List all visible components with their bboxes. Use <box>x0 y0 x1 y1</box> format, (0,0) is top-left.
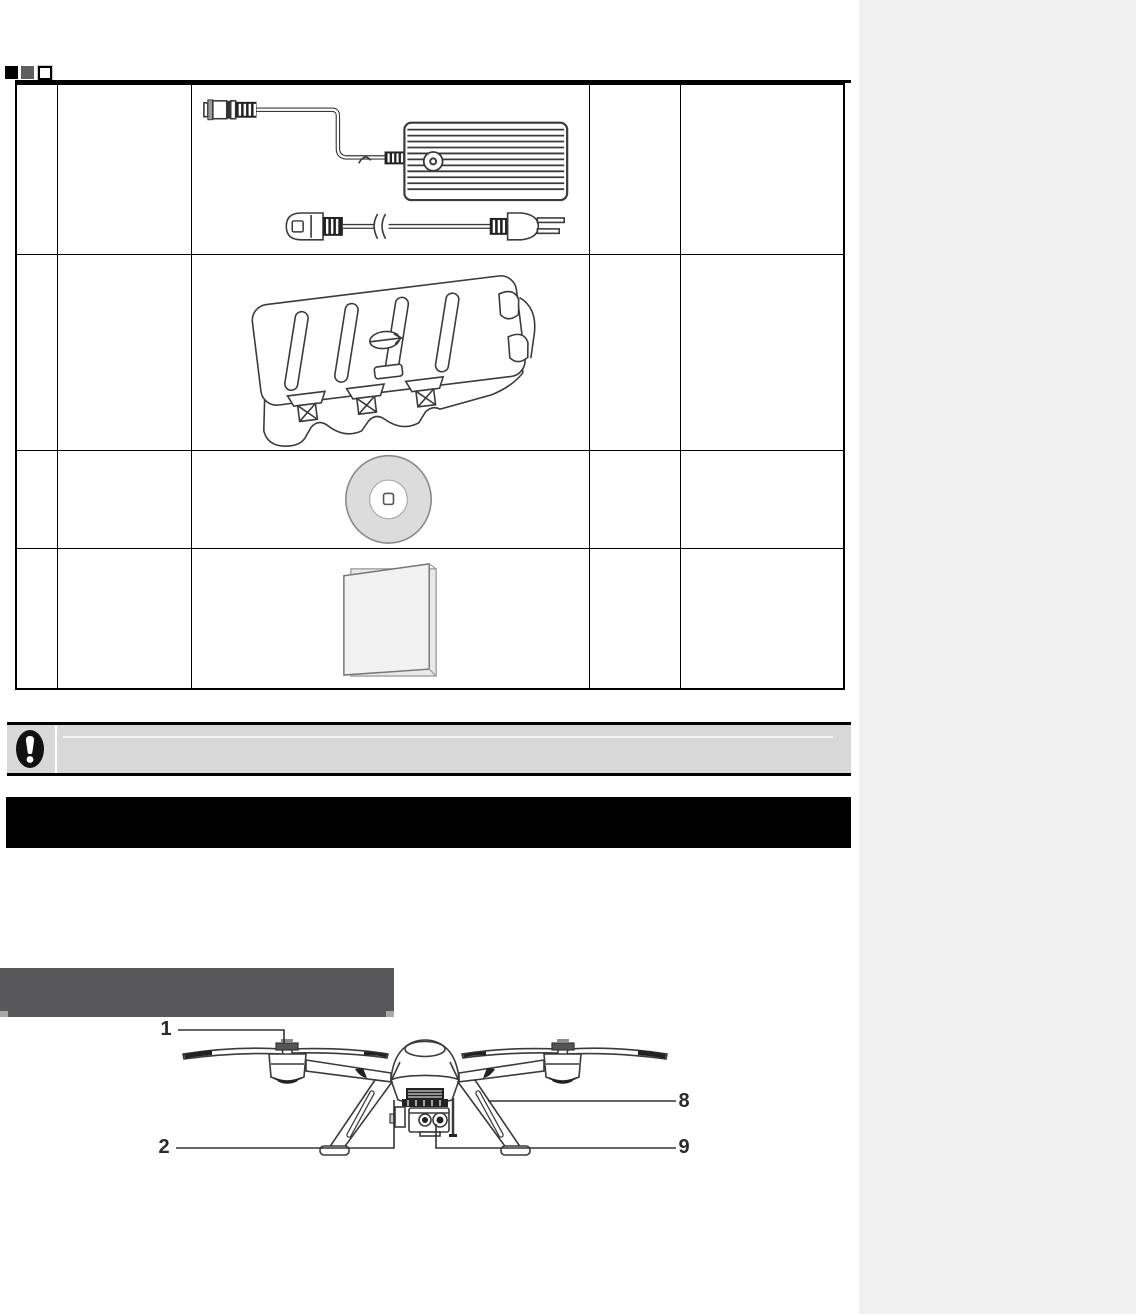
subsection-bar-notch <box>386 1011 394 1017</box>
cell-name <box>58 549 192 688</box>
callout-8: 8 <box>672 1090 696 1112</box>
cell-number <box>17 549 58 688</box>
cell-remark <box>681 85 843 254</box>
subsection-header-bar <box>0 968 394 1017</box>
notice-bar <box>7 722 851 776</box>
carrying-case-illustration <box>192 255 589 451</box>
battery-charger-illustration <box>192 85 589 254</box>
notice-icon-cell <box>7 725 57 773</box>
cell-name <box>58 85 192 254</box>
callout-1: 1 <box>154 1018 178 1040</box>
cell-illustration-booklet <box>192 549 590 688</box>
dc-connector <box>204 100 257 120</box>
notice-divider-rule <box>63 736 833 738</box>
subsection-bar-notch <box>0 1011 8 1017</box>
table-row <box>17 451 843 549</box>
cell-illustration-charger <box>192 85 590 254</box>
right-arm <box>459 1060 544 1082</box>
callout-9: 9 <box>672 1136 696 1158</box>
parts-table <box>15 83 845 690</box>
ac-power-cord <box>286 213 564 240</box>
page-progress-square-gray <box>21 66 34 79</box>
page-progress-square-filled <box>5 66 18 79</box>
cell-illustration-case <box>192 255 590 451</box>
section-header-bar <box>6 797 851 848</box>
table-row <box>17 549 843 688</box>
cell-qty <box>590 255 681 451</box>
cell-name <box>58 255 192 451</box>
exclamation-circle-icon <box>15 728 47 770</box>
page-progress-square-empty <box>38 66 52 80</box>
table-row <box>17 255 843 452</box>
cd-disc-illustration <box>192 451 589 548</box>
notice-text <box>67 741 841 769</box>
cell-remark <box>681 549 843 688</box>
cell-qty <box>590 85 681 254</box>
viewer-background-strip <box>859 0 1136 1314</box>
document-page: 1 2 8 9 <box>0 0 1136 1314</box>
manual-booklet-illustration <box>192 549 589 688</box>
right-landing-skid <box>458 1080 530 1155</box>
cell-illustration-cd <box>192 451 590 548</box>
cell-number <box>17 255 58 451</box>
charger-body <box>404 123 567 200</box>
cell-remark <box>681 451 843 548</box>
callout-2: 2 <box>152 1136 176 1158</box>
cell-number <box>17 451 58 548</box>
cell-qty <box>590 549 681 688</box>
quadcopter-front-view <box>150 1020 700 1170</box>
left-landing-skid <box>320 1080 392 1155</box>
quadcopter-figure <box>150 1020 700 1170</box>
gimbal-camera <box>390 1098 457 1137</box>
table-row <box>17 85 843 255</box>
cell-name <box>58 451 192 548</box>
cell-qty <box>590 451 681 548</box>
left-arm <box>306 1060 391 1082</box>
cell-number <box>17 85 58 254</box>
cell-remark <box>681 255 843 451</box>
